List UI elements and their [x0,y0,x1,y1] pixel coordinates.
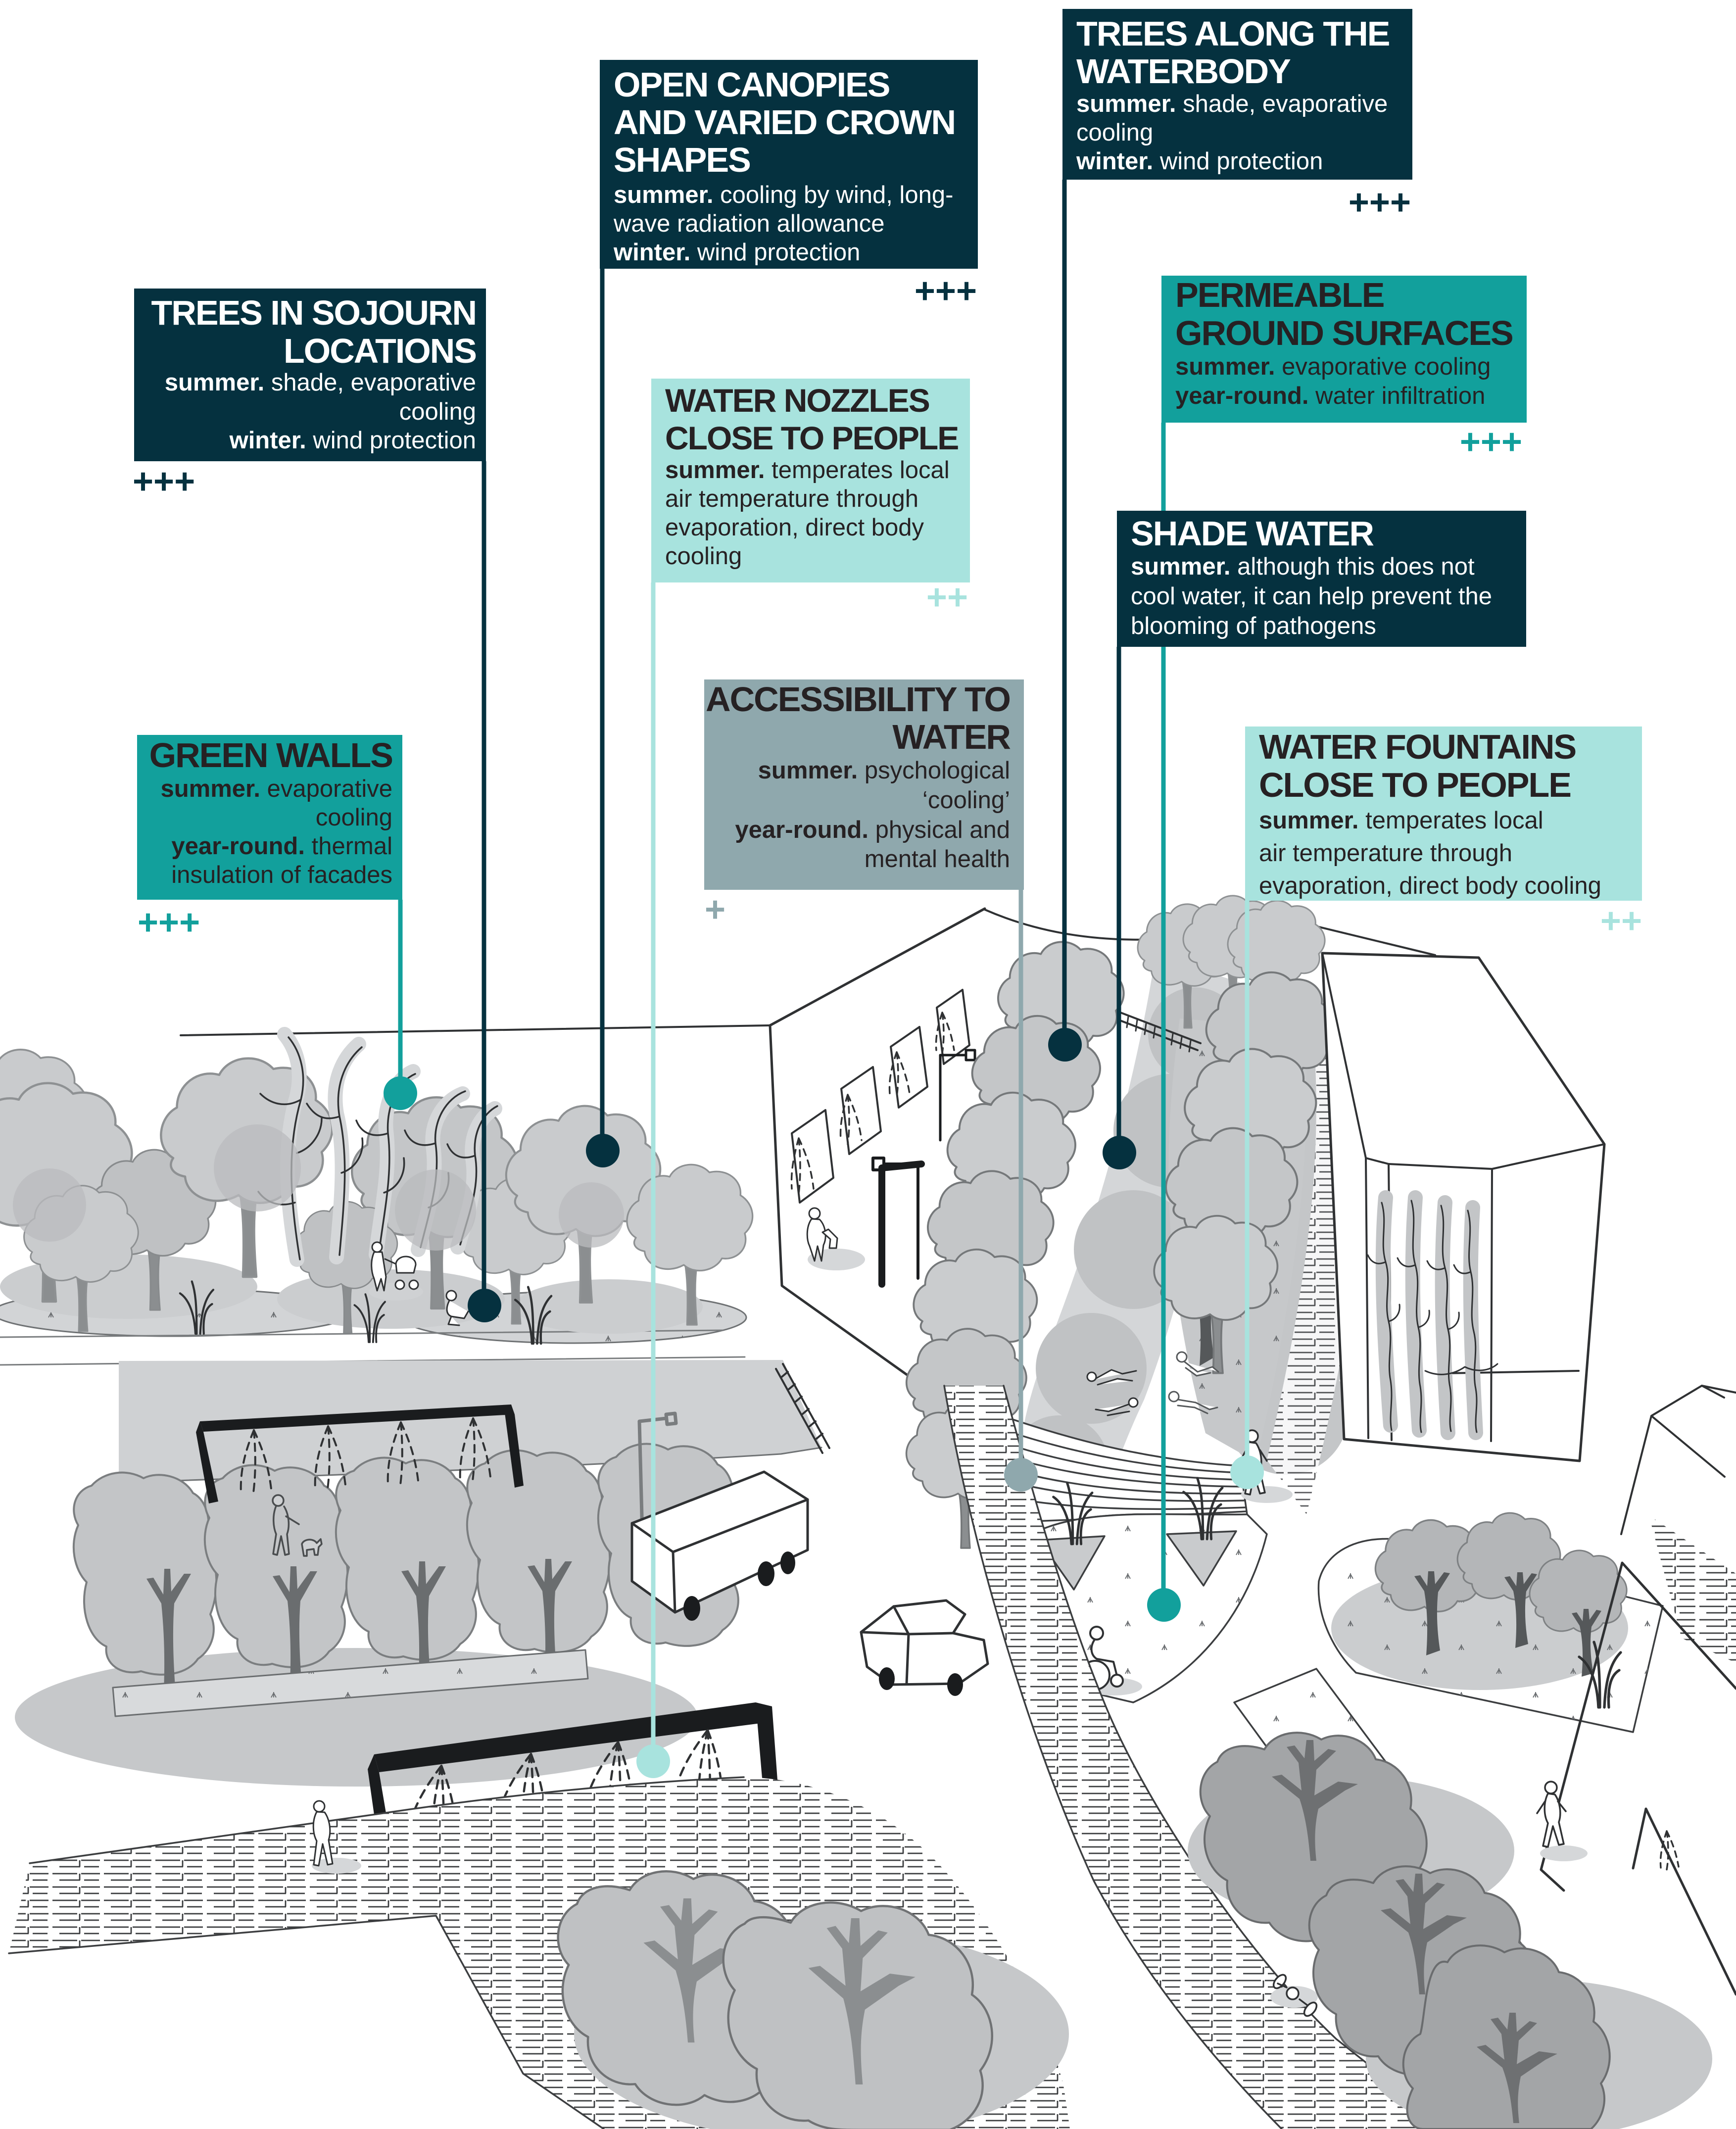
svg-text:WATER FOUNTAINS: WATER FOUNTAINS [1259,727,1576,766]
svg-text:cooling: cooling [316,804,392,831]
svg-text:+: + [705,890,725,929]
svg-text:OPEN CANOPIES: OPEN CANOPIES [614,65,889,104]
svg-text:air temperature through: air temperature through [665,485,918,512]
svg-text:evaporation, direct body: evaporation, direct body [665,514,924,541]
svg-text:SHADE WATER: SHADE WATER [1131,514,1374,553]
svg-text:AND VARIED CROWN: AND VARIED CROWN [614,103,955,142]
svg-text:summer. cooling by wind, long-: summer. cooling by wind, long- [614,182,953,208]
svg-text:++: ++ [926,578,968,617]
svg-text:PERMEABLE: PERMEABLE [1175,276,1384,314]
svg-text:year-round. thermal: year-round. thermal [171,833,392,860]
svg-text:ACCESSIBILITY TO: ACCESSIBILITY TO [706,680,1010,719]
svg-text:GROUND SURFACES: GROUND SURFACES [1175,314,1513,352]
svg-text:GREEN WALLS: GREEN WALLS [149,736,392,774]
svg-text:cool water, it can help preven: cool water, it can help prevent the [1131,583,1492,610]
svg-text:summer. evaporative cooling: summer. evaporative cooling [1175,353,1491,380]
svg-text:+++: +++ [915,271,977,311]
svg-text:blooming of pathogens: blooming of pathogens [1131,613,1376,639]
svg-text:year-round. water infiltration: year-round. water infiltration [1175,383,1485,409]
svg-text:summer. psychological: summer. psychological [758,757,1010,784]
svg-text:summer. although this does not: summer. although this does not [1131,553,1475,580]
svg-text:TREES ALONG THE: TREES ALONG THE [1076,14,1389,53]
svg-text:LOCATIONS: LOCATIONS [284,332,476,370]
svg-text:winter. wind protection: winter. wind protection [229,427,476,454]
svg-text:WATER NOZZLES: WATER NOZZLES [665,382,929,419]
svg-text:summer. shade, evaporative: summer. shade, evaporative [1076,91,1388,117]
svg-text:wave radiation allowance: wave radiation allowance [613,210,885,237]
svg-text:cooling: cooling [399,398,476,425]
svg-text:WATERBODY: WATERBODY [1076,52,1291,91]
svg-text:insulation of facades: insulation of facades [171,862,392,888]
svg-text:++: ++ [1600,901,1642,941]
svg-text:+++: +++ [138,903,200,942]
svg-text:CLOSE TO PEOPLE: CLOSE TO PEOPLE [665,420,958,456]
svg-text:summer. temperates local: summer. temperates local [1259,807,1543,834]
svg-text:CLOSE TO PEOPLE: CLOSE TO PEOPLE [1259,766,1571,804]
svg-text:SHAPES: SHAPES [614,141,750,179]
svg-text:summer. evaporative: summer. evaporative [160,775,392,802]
svg-text:TREES IN SOJOURN: TREES IN SOJOURN [151,293,476,332]
svg-text:summer. temperates local: summer. temperates local [665,457,950,484]
svg-text:WATER: WATER [892,718,1011,756]
svg-text:mental health: mental health [865,846,1010,872]
svg-text:+++: +++ [1349,183,1411,222]
svg-text:cooling: cooling [665,543,742,570]
svg-text:air temperature through: air temperature through [1259,840,1512,867]
svg-text:summer. shade, evaporative: summer. shade, evaporative [165,369,476,396]
svg-text:evaporation, direct body cooli: evaporation, direct body cooling [1259,872,1601,899]
svg-text:+++: +++ [133,462,195,501]
svg-text:year-round. physical and: year-round. physical and [735,817,1010,843]
svg-text:+++: +++ [1460,422,1522,462]
svg-text:cooling: cooling [1076,119,1153,146]
svg-text:winter. wind protection: winter. wind protection [1076,148,1323,175]
svg-text:winter. wind protection: winter. wind protection [613,239,860,266]
svg-text:‘cooling’: ‘cooling’ [922,787,1010,814]
